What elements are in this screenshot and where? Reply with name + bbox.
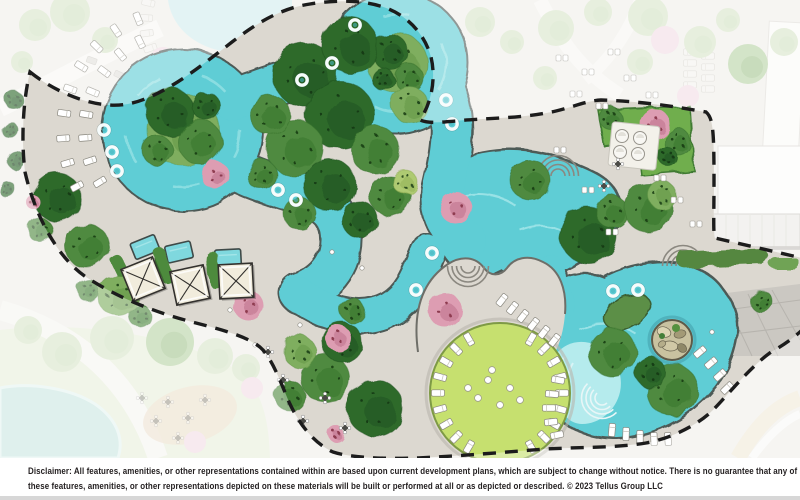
inner-tube-icon	[606, 284, 620, 298]
inner-tube-icon	[97, 123, 111, 137]
disclaimer-bar: Disclaimer: All features, amenities, or …	[0, 458, 800, 500]
inner-tube-icon	[110, 164, 124, 178]
inner-tube-icon	[425, 246, 439, 260]
inner-tube-icon	[271, 183, 285, 197]
cabana-icon	[170, 264, 213, 307]
inner-tube-icon	[295, 73, 309, 87]
disclaimer-line2: these features, amenities, or other repr…	[28, 479, 669, 494]
cabana-icon	[218, 263, 256, 301]
site-plan: Disclaimer: All features, amenities, or …	[0, 0, 800, 500]
inner-tube-icon	[409, 283, 423, 297]
inner-tube-icon	[105, 145, 119, 159]
inner-tube-icon	[631, 283, 645, 297]
site-plan-svg	[0, 0, 800, 458]
inner-tube-icon	[289, 193, 303, 207]
grotto-island	[649, 317, 695, 363]
inner-tube-icon	[348, 18, 362, 32]
disclaimer-line1: Disclaimer: All features, amenities, or …	[28, 464, 669, 479]
inner-tube-icon	[325, 56, 339, 70]
